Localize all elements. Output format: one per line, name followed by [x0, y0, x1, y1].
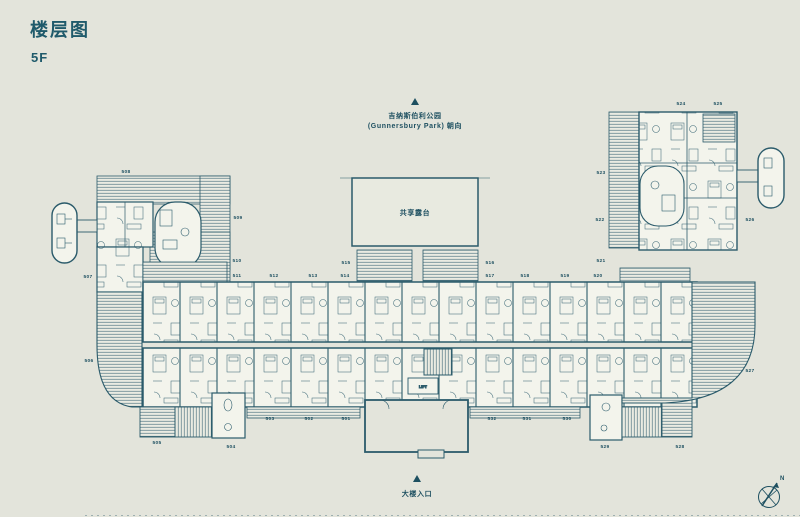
- unit-label-527: 527: [746, 368, 755, 374]
- unit-509-block: [155, 202, 201, 268]
- unit-label-514: 514: [341, 273, 350, 279]
- unit-label-524: 524: [677, 101, 686, 107]
- right-oval-stair-pod: [758, 148, 784, 208]
- unit-label-531: 531: [523, 416, 532, 422]
- unit-label-511: 511: [233, 273, 242, 279]
- unit-label-508: 508: [122, 169, 131, 175]
- park-orientation-note: 吉纳斯伯利公园 (Gunnersbury Park) 朝向: [368, 98, 462, 130]
- unit-label-519: 519: [561, 273, 570, 279]
- unit-label-505: 505: [153, 440, 162, 446]
- left-oval-stair-pod: [52, 203, 77, 263]
- entrance-hall: [365, 400, 468, 452]
- unit-label-510: 510: [233, 258, 242, 264]
- unit-label-530: 530: [563, 416, 572, 422]
- terrace-roof-strip-right: [423, 250, 478, 281]
- right-wing-west-terrace: [609, 112, 639, 248]
- unit-label-532: 532: [488, 416, 497, 422]
- entrance-triangle-icon: [413, 475, 421, 482]
- entrance-label: 大楼入口: [402, 489, 432, 498]
- floor-plan-page: 楼层图 5F: [0, 0, 800, 517]
- unit-label-528: 528: [676, 444, 685, 450]
- unit-label-503: 503: [266, 416, 275, 422]
- unit-label-526: 526: [746, 217, 755, 223]
- entrance-step: [418, 450, 444, 458]
- unit-label-520: 520: [594, 273, 603, 279]
- unit-label-517: 517: [486, 273, 495, 279]
- lift-label: LIFT: [419, 385, 428, 389]
- entrance-note: 大楼入口: [402, 475, 432, 498]
- unit-label-512: 512: [270, 273, 279, 279]
- unit-label-521: 521: [597, 258, 606, 264]
- north-park-triangle-icon: [411, 98, 419, 105]
- unit-label-502: 502: [305, 416, 314, 422]
- unit-505-terrace: [140, 407, 175, 437]
- unit-529-block: [590, 395, 622, 440]
- unit-label-504: 504: [227, 444, 236, 450]
- unit-label-501: 501: [342, 416, 351, 422]
- shared-terrace-label: 共享露台: [400, 208, 430, 217]
- north-balcony-strip-left: [143, 262, 227, 282]
- unit-label-522: 522: [596, 217, 605, 223]
- unit-504-block: [212, 393, 245, 438]
- unit-label-525: 525: [714, 101, 723, 107]
- southwest-stair: [175, 407, 212, 437]
- unit-label-516: 516: [486, 260, 495, 266]
- unit-label-515: 515: [342, 260, 351, 266]
- park-note-line1: 吉纳斯伯利公园: [388, 111, 441, 120]
- southwest-curved-terrace: [97, 292, 142, 407]
- park-note-line2: (Gunnersbury Park) 朝向: [368, 121, 462, 130]
- core-stair: [424, 349, 452, 375]
- floor-plan-svg: 吉纳斯伯利公园 (Gunnersbury Park) 朝向: [0, 0, 800, 517]
- unit-label-518: 518: [521, 273, 530, 279]
- southeast-stair: [622, 407, 662, 437]
- north-balcony-strip-right: [620, 268, 690, 282]
- unit-label-507: 507: [84, 274, 93, 280]
- unit-label-529: 529: [601, 444, 610, 450]
- unit-label-509: 509: [234, 215, 243, 221]
- unit-label-513: 513: [309, 273, 318, 279]
- unit-label-506: 506: [85, 358, 94, 364]
- shared-terrace: 共享露台: [340, 178, 490, 281]
- compass-north-label: N: [780, 476, 784, 482]
- unit-label-523: 523: [597, 170, 606, 176]
- terrace-roof-strip-left: [357, 250, 412, 281]
- compass-icon: N: [759, 476, 785, 508]
